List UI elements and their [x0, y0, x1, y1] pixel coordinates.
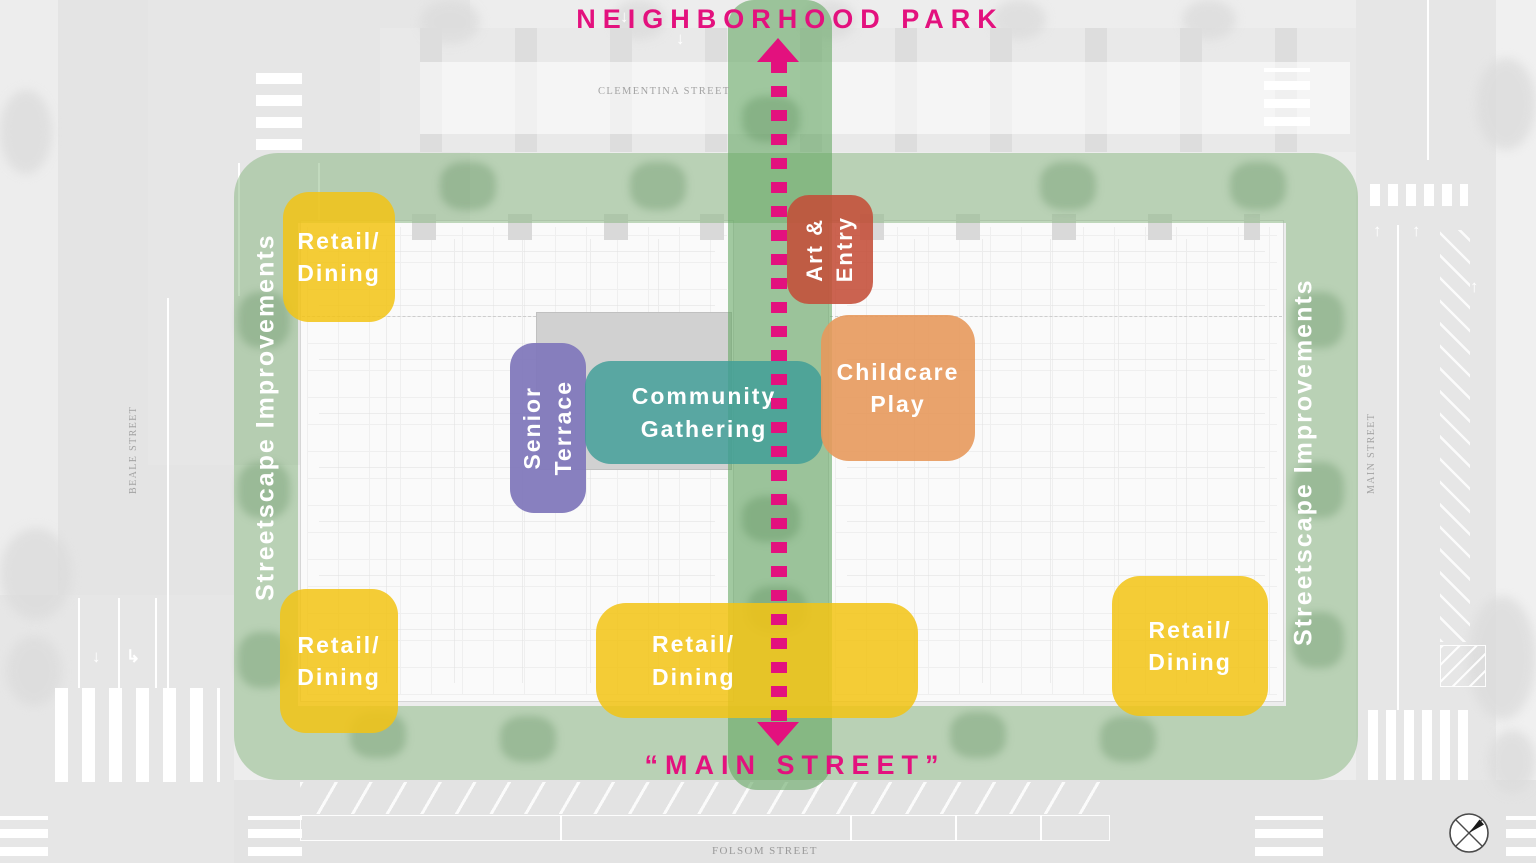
crosswalk-folsom-left-b — [248, 816, 302, 856]
streetscape-improvements-label-left: Streetscape Improvements — [234, 222, 298, 612]
lane-arrow-icon: ↑ — [1373, 222, 1382, 239]
zone-retail-dining-bottom-right: Retail/ Dining — [1112, 576, 1268, 716]
tree-icon — [0, 528, 72, 620]
street-tree-icon — [630, 162, 686, 210]
lane-line — [155, 598, 157, 688]
street-tree-icon — [1100, 716, 1156, 762]
lane-line — [1397, 225, 1399, 710]
zone-label: Play — [870, 388, 925, 420]
zone-label: Art & — [800, 218, 830, 282]
folsom-hatch-band — [300, 782, 1110, 814]
crosswalk-top-right-horizontal — [1264, 68, 1310, 126]
zone-label: Dining — [652, 661, 736, 693]
main-street-label: MAIN STREET — [1366, 410, 1377, 494]
tree-icon — [1488, 730, 1536, 794]
lane-line — [118, 598, 120, 688]
lane-arrow-icon: ↑ — [1412, 222, 1421, 239]
zone-label: Dining — [1148, 646, 1232, 678]
zone-label: Childcare — [837, 356, 960, 388]
park-arrow-up-icon — [757, 38, 799, 62]
folsom-curb-strip — [300, 815, 1110, 841]
street-tree-icon — [500, 716, 556, 762]
main-street-axis-dashed-line — [771, 62, 787, 722]
zone-label: Community — [632, 380, 777, 412]
main-street-title: “MAIN STREET” — [570, 750, 1020, 781]
curb-divider — [955, 815, 957, 841]
zone-label: Retail/ — [652, 628, 735, 660]
tree-icon — [0, 90, 52, 174]
crosswalk-bottom-right — [1368, 710, 1468, 780]
curb-divider — [1040, 815, 1042, 841]
main-street-arrow-down-icon — [757, 722, 799, 746]
zone-label: Senior — [517, 386, 548, 470]
beale-street-label: BEALE STREET — [128, 410, 139, 494]
zone-label: Gathering — [641, 413, 768, 445]
zone-childcare-play: Childcare Play — [821, 315, 975, 461]
lane-arrow-icon: ↑ — [1470, 278, 1479, 295]
zone-label: Entry — [830, 216, 860, 282]
zone-label: Retail/ — [297, 629, 380, 661]
zone-label: Retail/ — [1148, 614, 1231, 646]
site-plan-diagram: ↑ ↑ ↑ ↓ ↓ ↓ ↳ Retail/ Dining — [0, 0, 1536, 863]
lane-arrow-icon: ↳ — [126, 648, 140, 665]
street-tree-icon — [1040, 162, 1096, 210]
crosswalk-folsom-left-a — [0, 816, 48, 856]
zone-label: Terrace — [548, 380, 579, 475]
crosswalk-folsom-right-a — [1255, 816, 1323, 856]
curb-divider — [850, 815, 852, 841]
zone-label: Dining — [297, 257, 381, 289]
lane-arrow-icon: ↓ — [92, 648, 101, 665]
zone-retail-dining-top-left: Retail/ Dining — [283, 192, 395, 322]
clementina-street-label: CLEMENTINA STREET — [598, 86, 731, 97]
crosswalk-bottom-left — [55, 688, 220, 782]
crosswalk-top-right-vertical — [1370, 184, 1468, 206]
folsom-street-label: FOLSOM STREET — [712, 845, 818, 857]
zone-retail-dining-bottom-center: Retail/ Dining — [596, 603, 918, 718]
tree-icon — [6, 636, 62, 706]
lane-line — [1427, 0, 1429, 160]
zone-art-entry: Art & Entry — [787, 195, 873, 304]
lane-line — [167, 298, 169, 688]
street-tree-icon — [1230, 162, 1286, 210]
crosswalk-folsom-right-b — [1506, 816, 1536, 856]
lane-line — [78, 598, 80, 688]
streetscape-improvements-label-right: Streetscape Improvements — [1272, 262, 1336, 662]
street-tree-icon — [440, 162, 496, 210]
zone-label: Dining — [297, 661, 381, 693]
hatched-island — [1440, 645, 1486, 687]
clementina-bright-panels — [420, 62, 1350, 134]
crosswalk-top-left — [256, 64, 302, 150]
curb-divider — [560, 815, 562, 841]
zone-senior-terrace: Senior Terrace — [510, 343, 586, 513]
zone-label: Retail/ — [297, 225, 380, 257]
tree-icon — [1476, 58, 1536, 150]
zone-community-gathering: Community Gathering — [585, 361, 823, 464]
bike-lane-hatch — [1440, 230, 1470, 642]
neighborhood-park-title: NEIGHBORHOOD PARK — [490, 4, 1090, 35]
north-arrow-icon — [1447, 811, 1491, 855]
